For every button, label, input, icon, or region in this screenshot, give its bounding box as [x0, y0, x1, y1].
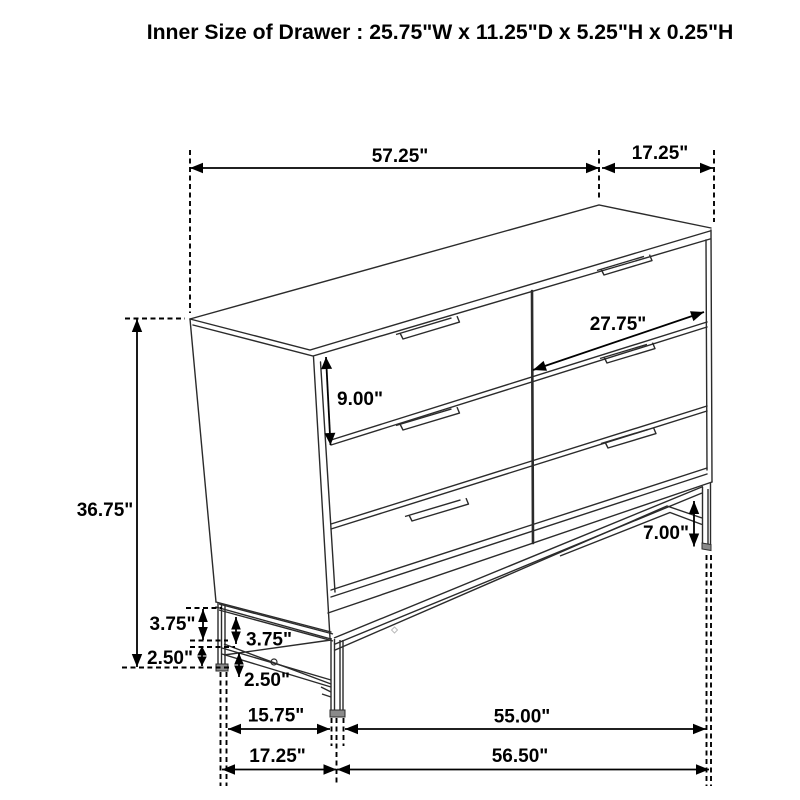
svg-text:Inner Size of Drawer : 25.75"W: Inner Size of Drawer : 25.75"W x 11.25"D…: [147, 21, 734, 44]
svg-text:3.75": 3.75": [246, 630, 292, 651]
svg-text:36.75": 36.75": [77, 500, 134, 521]
svg-text:57.25": 57.25": [372, 146, 429, 167]
svg-text:17.25": 17.25": [632, 143, 689, 164]
svg-text:56.50": 56.50": [492, 746, 549, 767]
svg-text:7.00": 7.00": [643, 523, 689, 544]
svg-text:2.50": 2.50": [147, 648, 193, 669]
svg-text:27.75": 27.75": [590, 314, 647, 335]
svg-text:15.75": 15.75": [248, 706, 305, 727]
svg-text:3.75": 3.75": [150, 614, 196, 635]
svg-text:17.25": 17.25": [249, 746, 306, 767]
svg-text:2.50": 2.50": [244, 670, 290, 691]
svg-text:9.00": 9.00": [337, 389, 383, 410]
svg-text:55.00": 55.00": [494, 707, 551, 728]
